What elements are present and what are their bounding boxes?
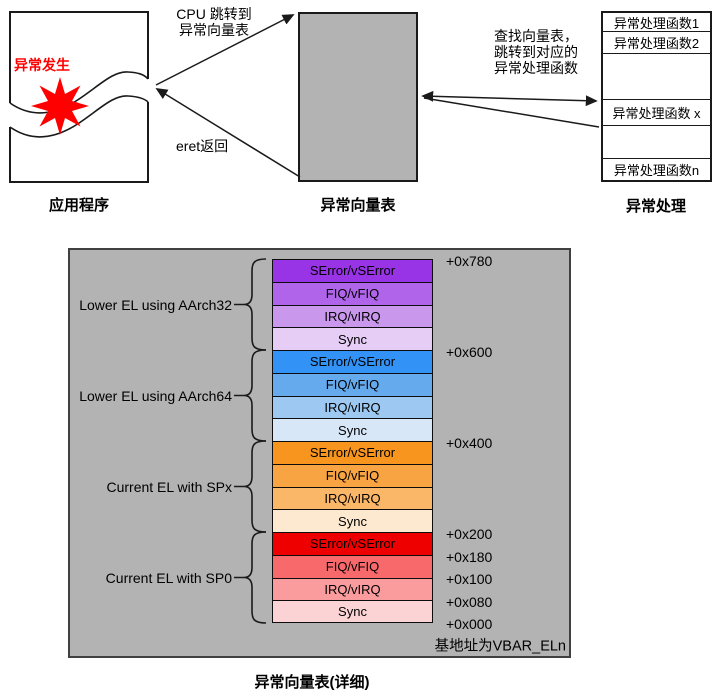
handler-row: 异常处理函数1 <box>603 13 710 32</box>
group-label-aarch64: Lower EL using AArch64 <box>70 388 232 404</box>
eret-arrow-label: eret返回 <box>176 138 228 154</box>
group-label-spx: Current EL with SPx <box>70 479 232 495</box>
crack-line-upper <box>10 72 148 113</box>
offset-label: +0x000 <box>446 616 492 632</box>
vector-entry: SError/vSError <box>272 441 433 464</box>
vector-entry: FIQ/vFIQ <box>272 555 433 578</box>
handler-caption: 异常处理 <box>626 195 686 216</box>
lookup-label-line3: 异常处理函数 <box>494 60 578 76</box>
offset-label: +0x600 <box>446 344 492 360</box>
handler-row: 异常处理函数2 <box>603 32 710 54</box>
exception-occurs-label: 异常发生 <box>14 57 70 73</box>
jump-label-line1: CPU 跳转到 <box>176 6 251 22</box>
app-caption: 应用程序 <box>49 194 109 215</box>
diagram-canvas: 异常处理函数1 异常处理函数2 异常处理函数 x 异常处理函数n 应用程序 异常… <box>0 0 720 695</box>
vector-entry: IRQ/vIRQ <box>272 578 433 601</box>
offset-label: +0x780 <box>446 253 492 269</box>
jump-label-line2: 异常向量表 <box>176 22 251 38</box>
lookup-arrow <box>423 96 596 101</box>
vector-entry: IRQ/vIRQ <box>272 305 433 328</box>
jump-arrow-label: CPU 跳转到 异常向量表 <box>176 6 251 38</box>
group-label-sp0: Current EL with SP0 <box>70 570 232 586</box>
vector-entry: Sync <box>272 327 433 350</box>
app-box <box>10 12 148 182</box>
handler-row: 异常处理函数n <box>603 159 710 180</box>
handler-return-line <box>424 98 599 127</box>
offset-label: +0x180 <box>446 549 492 565</box>
group-label-aarch32: Lower EL using AArch32 <box>70 297 232 313</box>
vector-entry: FIQ/vFIQ <box>272 282 433 305</box>
lookup-label-line2: 跳转到对应的 <box>494 44 578 60</box>
vector-entry: Sync <box>272 509 433 532</box>
handler-row: 异常处理函数 x <box>603 100 710 126</box>
lookup-label-line1: 查找向量表， <box>494 28 578 44</box>
vector-entry: SError/vSError <box>272 532 433 555</box>
vector-entry: FIQ/vFIQ <box>272 464 433 487</box>
offset-label: +0x400 <box>446 435 492 451</box>
vector-caption: 异常向量表 <box>320 194 395 215</box>
lookup-arrow-label: 查找向量表， 跳转到对应的 异常处理函数 <box>494 28 578 76</box>
vector-entry: IRQ/vIRQ <box>272 396 433 419</box>
crack-line-lower <box>10 96 148 137</box>
handler-row <box>603 126 710 159</box>
vector-entry: SError/vSError <box>272 259 433 282</box>
vector-entry: Sync <box>272 600 433 623</box>
exception-burst-icon <box>31 77 89 135</box>
detail-caption: 异常向量表(详细) <box>255 671 370 692</box>
vector-entry: Sync <box>272 418 433 441</box>
vector-entry: SError/vSError <box>272 350 433 373</box>
offset-label: +0x200 <box>446 526 492 542</box>
base-address-label: 基地址为VBAR_ELn <box>350 635 566 656</box>
vector-entry: FIQ/vFIQ <box>272 373 433 396</box>
handler-table: 异常处理函数1 异常处理函数2 异常处理函数 x 异常处理函数n <box>601 11 712 182</box>
vector-entry: IRQ/vIRQ <box>272 487 433 510</box>
offset-label: +0x100 <box>446 571 492 587</box>
offset-label: +0x080 <box>446 594 492 610</box>
vector-entries-table: SError/vSError FIQ/vFIQ IRQ/vIRQ Sync SE… <box>272 259 433 623</box>
handler-row <box>603 54 710 100</box>
vector-table-box <box>298 12 418 182</box>
eret-arrow <box>157 89 300 177</box>
